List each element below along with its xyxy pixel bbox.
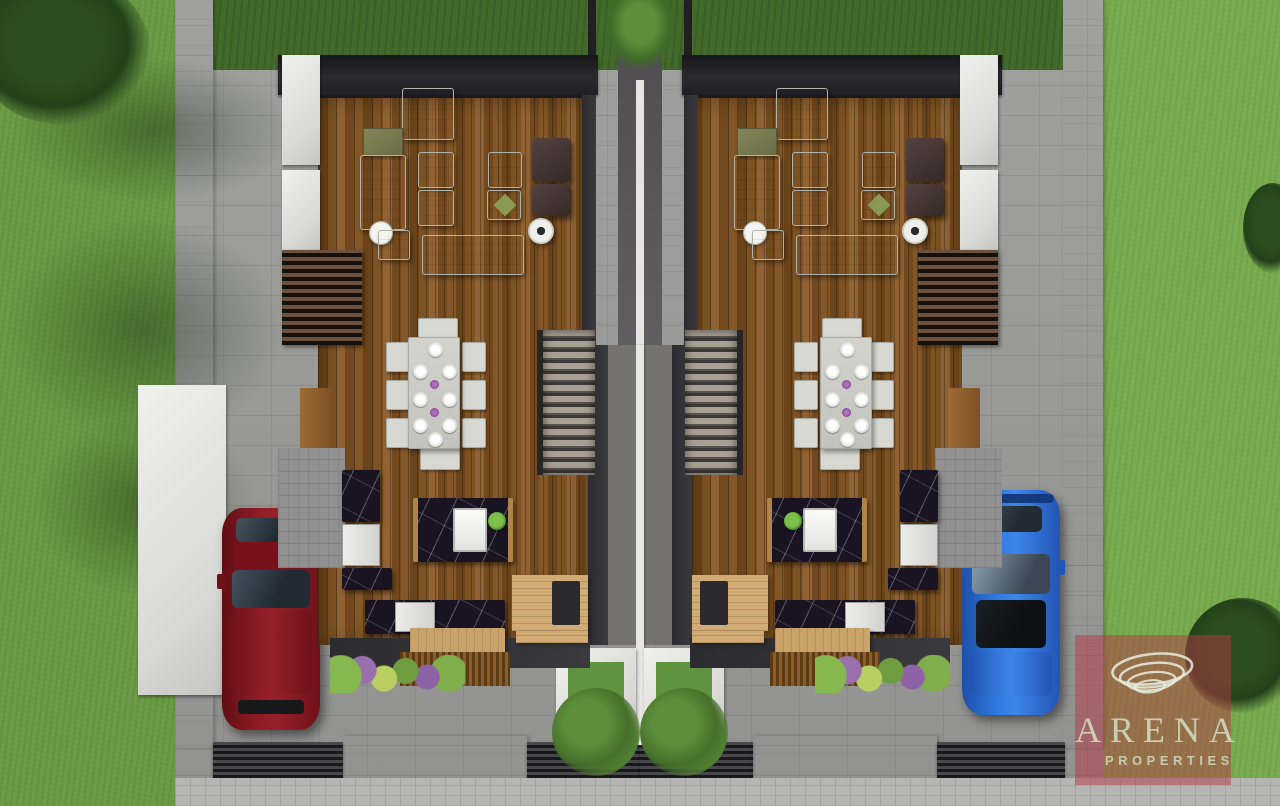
entry-path-stripe — [636, 345, 644, 745]
dinner-plate — [825, 364, 840, 379]
gate-white-panel-right — [753, 736, 937, 780]
table-decor — [868, 194, 891, 217]
dining-chair — [794, 418, 818, 448]
deck-step — [516, 631, 588, 643]
floor-lamp — [902, 218, 928, 244]
loveseat-sofa — [734, 155, 780, 230]
ottoman — [418, 152, 454, 188]
dining-chair — [870, 418, 894, 448]
kitchen-island — [767, 498, 867, 562]
entry-door — [552, 581, 580, 625]
dinner-plate — [840, 432, 855, 447]
flower-centerpiece — [842, 380, 851, 389]
red-car-mirror — [217, 574, 226, 589]
garage-structure — [138, 385, 226, 695]
closet-wall — [960, 55, 998, 165]
dinner-plate — [442, 364, 457, 379]
kitchen-counter — [900, 470, 938, 522]
watermark-logo: ARENA PROPERTIES — [1075, 635, 1231, 785]
planter-shrub-left — [552, 688, 640, 776]
wood-window-niche — [948, 388, 980, 448]
three-seat-sofa — [796, 235, 898, 275]
closet-wall — [282, 170, 320, 250]
wood-window-niche — [300, 388, 332, 448]
corridor-walkway-stripe — [636, 80, 644, 345]
island-plant — [488, 512, 506, 530]
entry-door — [700, 581, 728, 625]
dining-chair — [386, 342, 410, 372]
coffee-table — [861, 190, 895, 220]
brand-name: ARENA — [1075, 709, 1231, 751]
dinner-plate — [442, 418, 457, 433]
dining-chair — [462, 418, 486, 448]
driveway-gate-left-outer — [213, 742, 343, 778]
kitchen-sink — [803, 508, 837, 552]
staircase — [685, 330, 743, 475]
accent-chair-dark — [532, 138, 570, 182]
ottoman — [488, 152, 522, 188]
entry-deck — [512, 575, 588, 631]
ornamental-plants — [815, 655, 950, 693]
floor-lamp — [528, 218, 554, 244]
kitchen-counter — [342, 470, 380, 522]
dining-table — [820, 337, 872, 449]
dining-chair — [386, 380, 410, 410]
coffee-table — [487, 190, 521, 220]
gate-white-panel-left — [343, 736, 527, 780]
dinner-plate — [428, 432, 443, 447]
kitchen-counter — [888, 568, 938, 590]
red-car-grille — [238, 700, 304, 714]
roof-glass-edge — [682, 55, 1002, 95]
ottoman — [792, 152, 828, 188]
kitchen-island — [413, 498, 513, 562]
reading-chair — [378, 230, 410, 260]
entry-deck — [692, 575, 768, 631]
spiral-ellipses-icon — [1103, 643, 1203, 709]
driveway-gate-right-outer — [937, 742, 1065, 778]
dining-chair — [794, 342, 818, 372]
flower-centerpiece — [430, 380, 439, 389]
flower-centerpiece — [842, 408, 851, 417]
stone-side-wall — [935, 448, 1002, 568]
dining-chair — [462, 380, 486, 410]
closet-wall — [282, 55, 320, 165]
oven-appliance — [900, 524, 938, 566]
ornamental-plants — [330, 655, 465, 693]
party-wall — [684, 95, 698, 345]
dining-chair — [820, 448, 860, 470]
unit-left — [278, 55, 598, 700]
dining-chair — [794, 380, 818, 410]
aerial-floor-plan-render: ARENA PROPERTIES — [0, 0, 1280, 806]
brand-tagline: PROPERTIES — [1105, 753, 1231, 771]
dining-chair — [870, 342, 894, 372]
dining-chair — [420, 448, 460, 470]
blue-car-mirror — [1056, 560, 1065, 575]
stone-side-wall — [278, 448, 345, 568]
party-wall — [582, 95, 596, 345]
accent-chair-dark — [532, 184, 570, 216]
ottoman — [792, 190, 828, 226]
accent-chair-dark — [906, 138, 944, 182]
dinner-plate — [413, 392, 428, 407]
kitchen-counter — [342, 568, 392, 590]
island-plant — [784, 512, 802, 530]
dinner-plate — [442, 392, 457, 407]
side-table-green — [363, 128, 403, 156]
side-table-green — [737, 128, 777, 156]
dinner-plate — [413, 364, 428, 379]
ottoman — [418, 190, 454, 226]
unit-right — [682, 55, 1002, 700]
dinner-plate — [413, 418, 428, 433]
armchair — [402, 88, 454, 140]
armchair — [776, 88, 828, 140]
table-decor — [494, 194, 517, 217]
kitchen-sink — [453, 508, 487, 552]
dinner-plate — [840, 342, 855, 357]
dinner-plate — [854, 392, 869, 407]
dining-chair — [462, 342, 486, 372]
loveseat-sofa — [360, 155, 406, 230]
flower-centerpiece — [430, 408, 439, 417]
accent-chair-dark — [906, 184, 944, 216]
planter-shrub-right — [640, 688, 728, 776]
closet-wall — [960, 170, 998, 250]
oven-appliance — [342, 524, 380, 566]
dining-chair — [870, 380, 894, 410]
three-seat-sofa — [422, 235, 524, 275]
dinner-plate — [825, 392, 840, 407]
dinner-plate — [825, 418, 840, 433]
louver-window — [282, 250, 362, 345]
reading-chair — [752, 230, 784, 260]
dining-table — [408, 337, 460, 449]
deck-step — [692, 631, 764, 643]
louver-window — [918, 250, 998, 345]
staircase — [537, 330, 595, 475]
ottoman — [862, 152, 896, 188]
dinner-plate — [854, 418, 869, 433]
dining-chair — [386, 418, 410, 448]
dinner-plate — [428, 342, 443, 357]
dinner-plate — [854, 364, 869, 379]
